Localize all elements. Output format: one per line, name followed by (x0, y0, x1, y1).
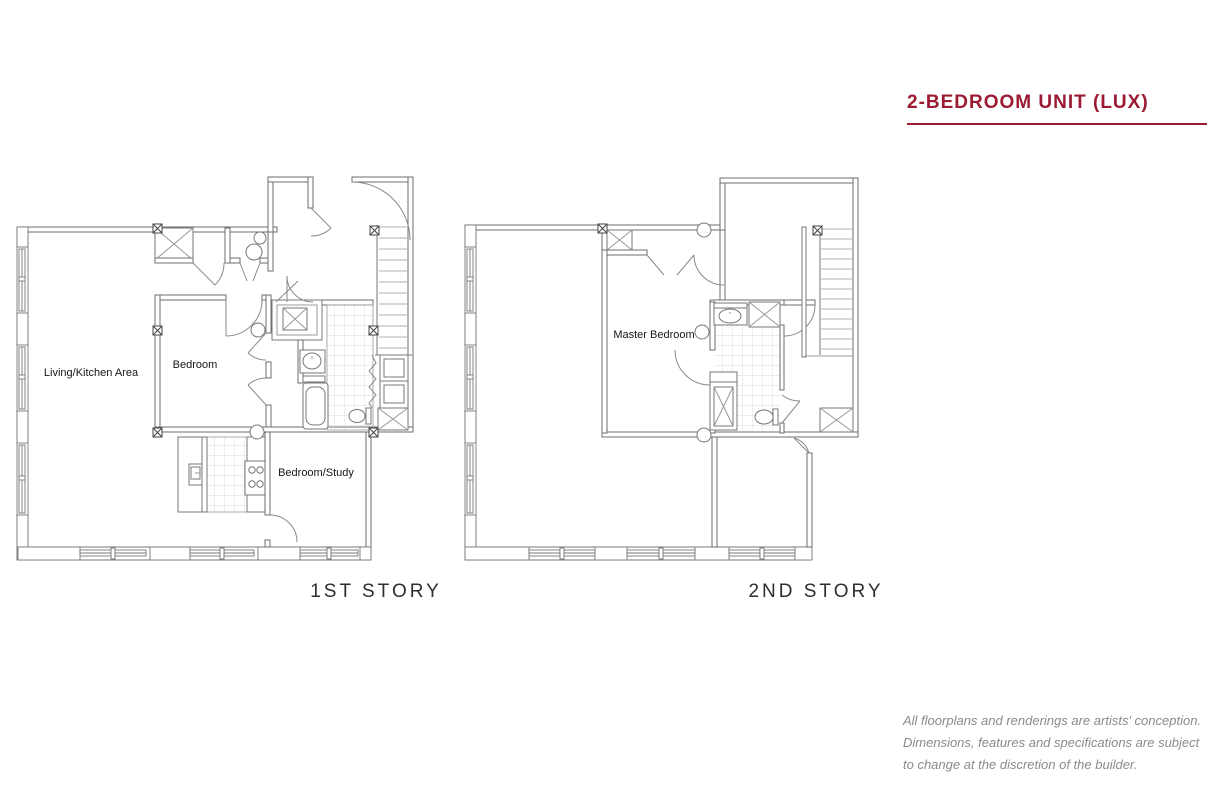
sink-icon (254, 232, 266, 244)
round-marker (250, 425, 264, 439)
column-marker (153, 326, 162, 335)
sink-icon (300, 350, 325, 382)
bedroom-doors (226, 300, 266, 405)
room-label-bedroom-study: Bedroom/Study (278, 467, 354, 479)
washer-dryer-icon (380, 355, 408, 408)
disclaimer: All floorplans and renderings are artist… (903, 710, 1218, 776)
floorplan-sheet: 2-BEDROOM UNIT (LUX) (0, 0, 1228, 794)
window (663, 550, 695, 556)
bathroom (272, 276, 373, 430)
room-label-bedroom: Bedroom (173, 359, 218, 371)
window (467, 445, 473, 513)
shower-icon (272, 300, 322, 340)
first-story-caption: 1ST STORY (310, 581, 442, 603)
stove-icon (245, 461, 267, 495)
kitchen-sink-icon (189, 464, 202, 485)
window (19, 445, 25, 513)
exterior-walls (465, 178, 858, 437)
disclaimer-line: Dimensions, features and specifications … (903, 732, 1218, 754)
second-story-caption: 2ND STORY (748, 581, 883, 603)
window (467, 347, 473, 409)
closet-x-icon (820, 408, 853, 432)
bathtub-icon (303, 383, 328, 429)
closet-x-icon (378, 408, 408, 430)
stairs-icon (375, 225, 412, 355)
bath-doors (276, 276, 313, 302)
window (627, 550, 659, 556)
first-story-floorplan: Living/Kitchen Area Bedroom Bedroom/Stud… (14, 175, 414, 565)
shower-icon (710, 372, 737, 430)
column-marker (369, 326, 378, 335)
master-bathroom (675, 300, 815, 433)
window (19, 249, 25, 311)
round-marker (697, 428, 711, 442)
window (331, 550, 358, 556)
column-marker (370, 226, 379, 235)
round-marker (697, 223, 711, 237)
disclaimer-line: All floorplans and renderings are artist… (903, 710, 1218, 732)
disclaimer-line: to change at the discretion of the build… (903, 754, 1218, 776)
left-wall-windows (17, 227, 28, 560)
window (19, 347, 25, 409)
closet-x-icon (607, 230, 632, 250)
page-title-block: 2-BEDROOM UNIT (LUX) (907, 92, 1207, 125)
entry-door (311, 182, 410, 240)
window (80, 550, 111, 556)
lower-room-walls (712, 437, 812, 547)
window (300, 550, 327, 556)
left-wall-windows (465, 225, 476, 560)
page-title: 2-BEDROOM UNIT (LUX) (907, 92, 1207, 114)
bottom-wall-windows (465, 547, 812, 560)
window (190, 550, 220, 556)
window (564, 550, 595, 556)
master-doors (647, 255, 724, 285)
window (115, 550, 146, 556)
column-marker (153, 428, 162, 437)
window (467, 249, 473, 311)
bottom-wall-windows (17, 547, 371, 560)
room-label-living-kitchen: Living/Kitchen Area (44, 367, 139, 379)
toilet-icon (349, 408, 371, 424)
column-marker (813, 226, 822, 235)
toilet-icon (246, 244, 262, 260)
door-arc (270, 515, 297, 542)
closet-x-icon (749, 302, 780, 327)
window (529, 550, 560, 556)
window (224, 550, 254, 556)
round-marker (251, 323, 265, 337)
column-marker (369, 428, 378, 437)
column-marker (598, 224, 607, 233)
window (764, 550, 795, 556)
window (729, 550, 760, 556)
room-label-master-bedroom: Master Bedroom (613, 329, 694, 341)
second-story-floorplan: Master Bedroom (452, 175, 867, 565)
column-marker (153, 224, 162, 233)
kitchen (178, 432, 297, 547)
toilet-icon (755, 409, 778, 425)
lower-room-door (794, 438, 809, 453)
round-marker (695, 325, 709, 339)
stairs-icon (802, 227, 853, 357)
door-leaf (193, 263, 260, 285)
sink-icon (714, 303, 747, 325)
kitchen-tile-floor (207, 437, 247, 512)
